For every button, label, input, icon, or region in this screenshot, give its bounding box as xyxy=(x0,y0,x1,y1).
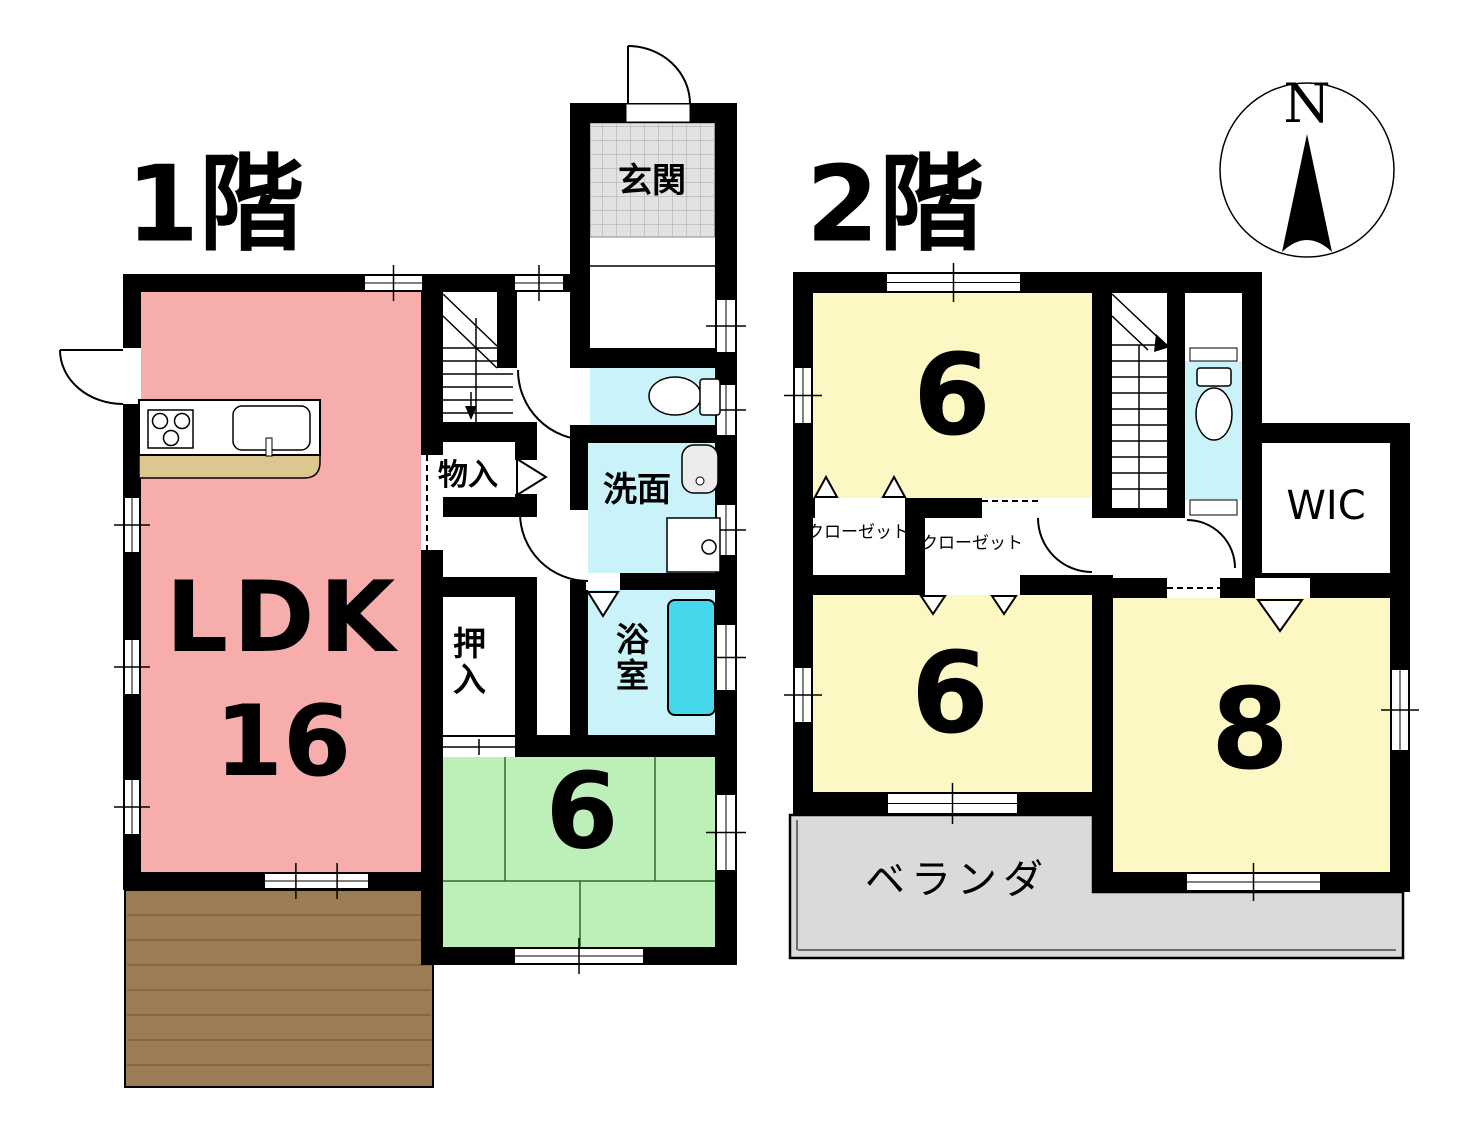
bedroom-north-size: 6 xyxy=(913,340,991,452)
closet-left-label: クローゼット xyxy=(807,525,909,542)
floor1-title: 1階 xyxy=(126,153,304,258)
bedroom-north-door-arc xyxy=(1038,518,1092,572)
compass-north-label: N xyxy=(1283,77,1330,131)
wic-label: WIC xyxy=(1286,486,1365,526)
bedroom-sw-size: 6 xyxy=(911,638,989,750)
faucet-icon xyxy=(266,438,272,456)
stairs-2f xyxy=(1112,294,1170,508)
storage-door-mark xyxy=(517,459,546,495)
floor2-title: 2階 xyxy=(806,153,984,258)
window-mark xyxy=(515,265,563,301)
futon-closet-label: 押入 xyxy=(451,626,484,698)
toilet-1f-icon xyxy=(649,377,720,415)
bathroom-label: 浴室 xyxy=(614,622,647,694)
entrance-door-arc xyxy=(628,46,690,104)
toilet-2f-icon xyxy=(1196,368,1232,440)
ldk-label: LDK xyxy=(166,569,401,667)
entrance-label: 玄関 xyxy=(618,164,686,198)
washroom-door-arc xyxy=(520,513,588,581)
kitchen-unit xyxy=(139,400,320,478)
storage-label: 物入 xyxy=(438,461,498,491)
washer-pan-icon xyxy=(667,518,720,572)
bedroom-se-size: 8 xyxy=(1211,674,1289,786)
ldk-door-arc xyxy=(60,350,123,404)
floorplan-canvas: 1階 2階 玄関 LDK 16 物入 押入 洗面 浴室 6 6 クローゼット ク… xyxy=(0,0,1482,1138)
washroom-label: 洗面 xyxy=(603,473,671,507)
wood-deck xyxy=(125,890,433,1087)
closet-right-label: クローゼット xyxy=(921,536,1023,553)
washbasin-icon xyxy=(682,445,718,493)
kitchen-counter xyxy=(139,455,320,478)
window-mark xyxy=(706,300,746,352)
tatami-size: 6 xyxy=(545,760,618,865)
bathtub-icon xyxy=(668,600,715,715)
toilet2f-door-arc xyxy=(1187,520,1235,568)
balcony-label: ベランダ xyxy=(865,860,1049,900)
ldk-size: 16 xyxy=(215,693,351,791)
